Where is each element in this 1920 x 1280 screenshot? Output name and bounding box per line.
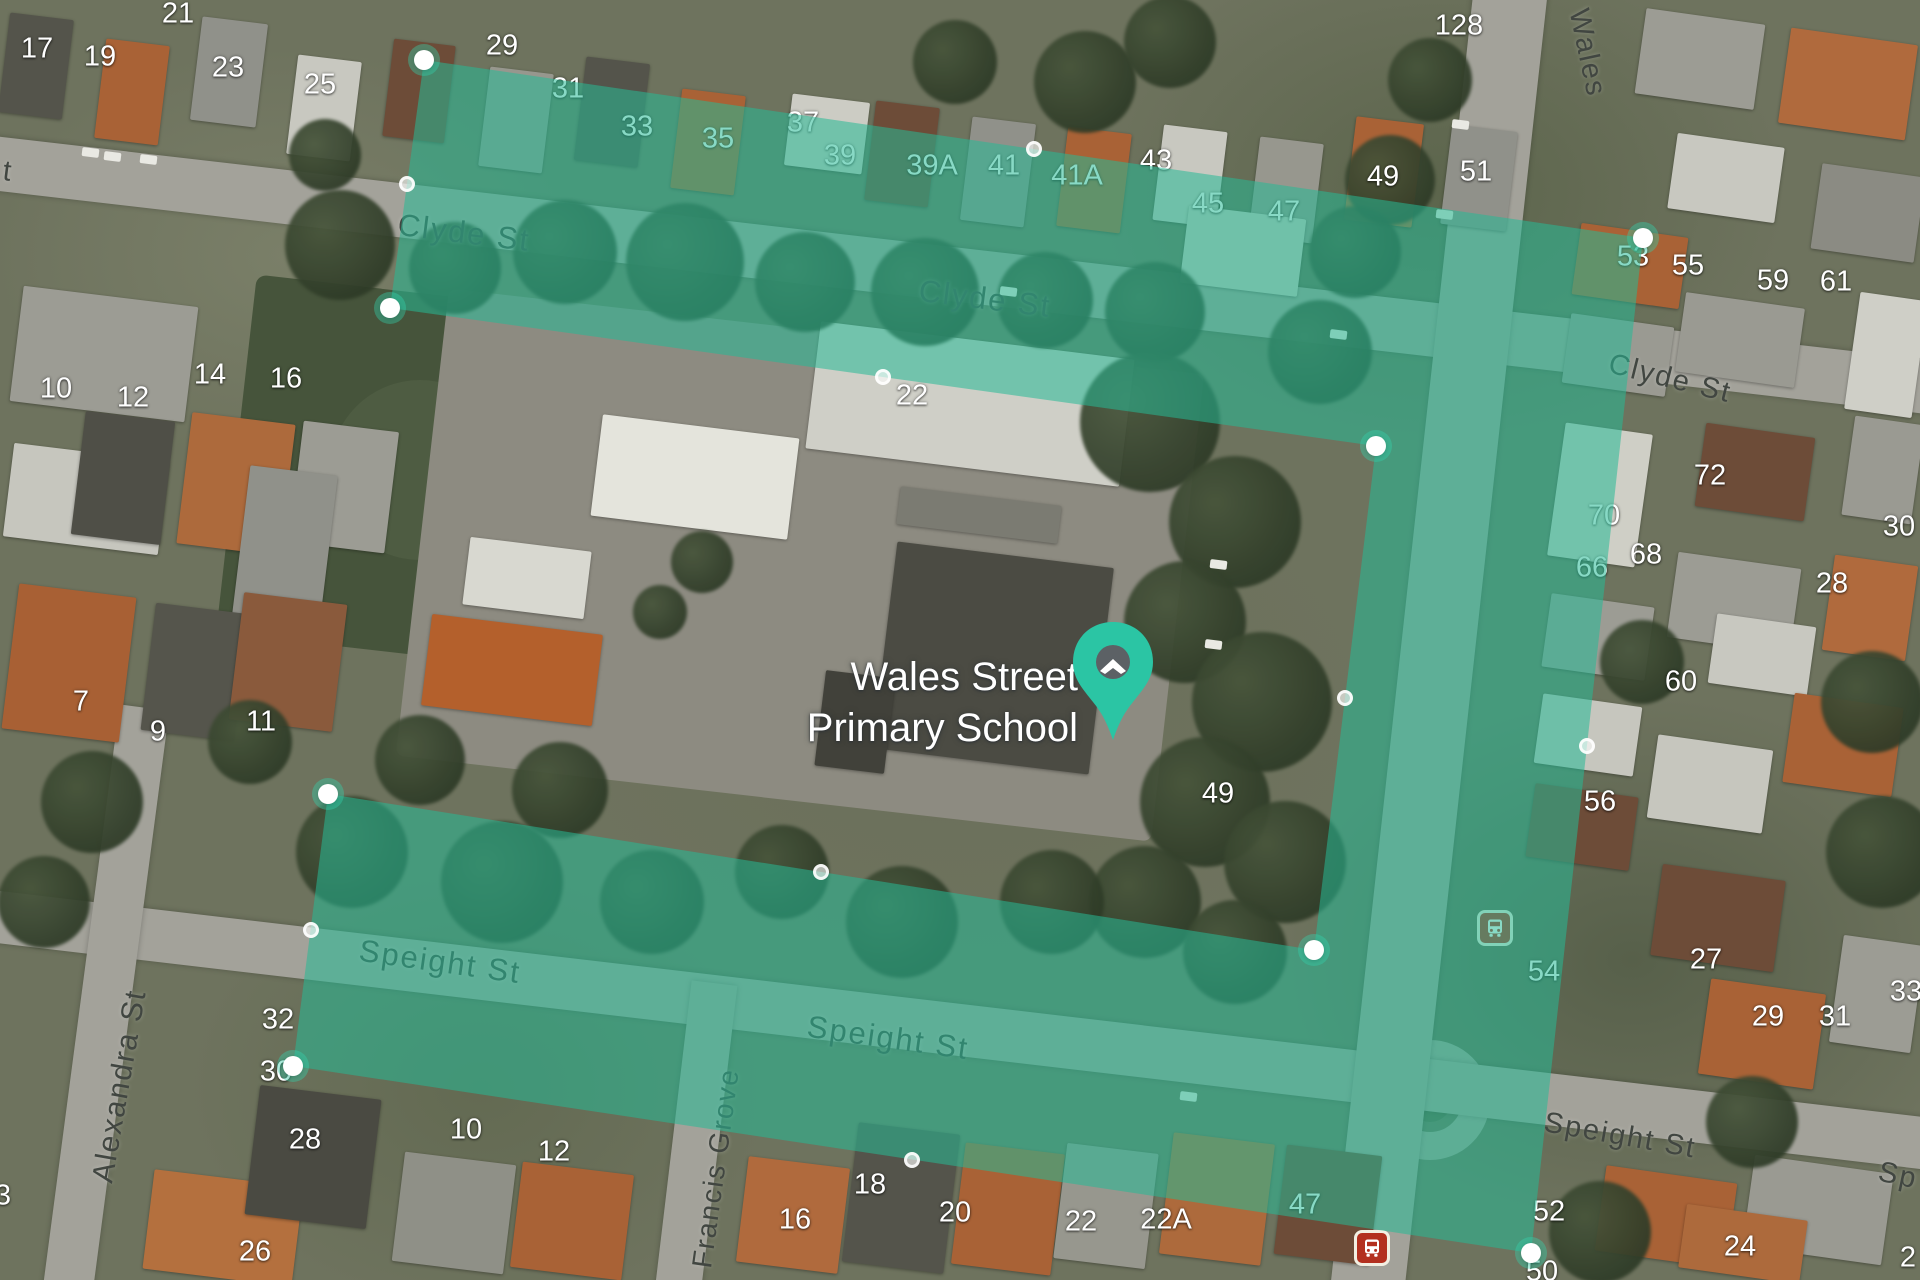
house-number-label: 51 [1460,156,1492,189]
house-number-label: 7 [73,686,89,719]
polygon-midpoint-handle[interactable] [303,922,319,938]
polygon-midpoint-handle[interactable] [904,1152,920,1168]
house-number-label: 20 [939,1197,971,1230]
house-number-label: 31 [1819,1001,1851,1034]
house-number-label: 10 [40,373,72,406]
street-label: Wales [1562,6,1613,100]
house-number-label: 33 [1890,976,1920,1009]
house-number-label: 10 [450,1114,482,1147]
polygon-midpoint-handle[interactable] [875,369,891,385]
house-number-label: 12 [538,1136,570,1169]
house-number-label: 128 [1435,10,1483,43]
house-number-label: 29 [486,30,518,63]
polygon-midpoint-handle[interactable] [813,864,829,880]
map-canvas[interactable]: Clyde StClyde StClyde StSpeight StSpeigh… [0,0,1920,1280]
house-number-label: 68 [1630,539,1662,572]
house-number-label: 32 [262,1004,294,1037]
house-number-label: 22A [1140,1204,1192,1237]
street-label: Alexandra St [86,987,153,1186]
house-number-label: 52 [1533,1196,1565,1229]
house-number-label: 27 [1690,944,1722,977]
polygon-vertex-handle[interactable] [1366,436,1386,456]
house-number-label: 49 [1202,778,1234,811]
house-number-label: 59 [1757,265,1789,298]
house-number-label: 16 [779,1204,811,1237]
house-number-label: 61 [1820,266,1852,299]
polygon-vertex-handle[interactable] [380,298,400,318]
house-number-label: 22 [896,380,928,413]
house-number-label: 14 [194,359,226,392]
polygon-vertex-handle[interactable] [414,50,434,70]
polygon-midpoint-handle[interactable] [399,176,415,192]
polygon-midpoint-handle[interactable] [1337,690,1353,706]
place-label-line1: Wales Street [807,652,1078,703]
house-number-label: 19 [84,41,116,74]
house-number-label: 17 [21,33,53,66]
house-number-label: 28 [289,1124,321,1157]
house-number-label: 18 [854,1169,886,1202]
house-number-label: 11 [246,706,276,739]
house-number-label: 12 [117,382,149,415]
house-number-label: 30 [1883,511,1915,544]
house-number-label: 2 [1900,1242,1916,1275]
polygon-vertex-handle[interactable] [318,784,338,804]
house-number-label: 22 [1065,1206,1097,1239]
place-label-line2: Primary School [807,703,1078,754]
bus-stop-icon[interactable] [1354,1230,1390,1266]
house-number-label: 23 [212,52,244,85]
house-number-label: 55 [1672,250,1704,283]
house-number-label: 24 [1724,1231,1756,1264]
street-label: t [1,155,15,189]
house-number-label: 16 [270,363,302,396]
house-number-label: 49 [1367,161,1399,194]
street-label: Sp [1875,1156,1920,1196]
polygon-vertex-handle[interactable] [1304,940,1324,960]
house-number-label: 28 [1816,568,1848,601]
place-label: Wales Street Primary School [807,652,1078,754]
house-number-label: 60 [1665,666,1697,699]
polygon-vertex-handle[interactable] [1521,1243,1541,1263]
house-number-label: 29 [1752,1001,1784,1034]
polygon-midpoint-handle[interactable] [1579,738,1595,754]
place-pin-icon[interactable] [1071,620,1155,742]
polygon-vertex-handle[interactable] [283,1056,303,1076]
polygon-vertex-handle[interactable] [1633,228,1653,248]
house-number-label: 25 [304,69,336,102]
house-number-label: 21 [162,0,194,31]
house-number-label: 56 [1584,786,1616,819]
house-number-label: 26 [239,1236,271,1269]
street-label: Speight St [1541,1106,1698,1165]
house-number-label: 72 [1694,460,1726,493]
house-number-label: 9 [150,716,166,749]
polygon-midpoint-handle[interactable] [1026,141,1042,157]
house-number-label: 3 [0,1180,11,1213]
